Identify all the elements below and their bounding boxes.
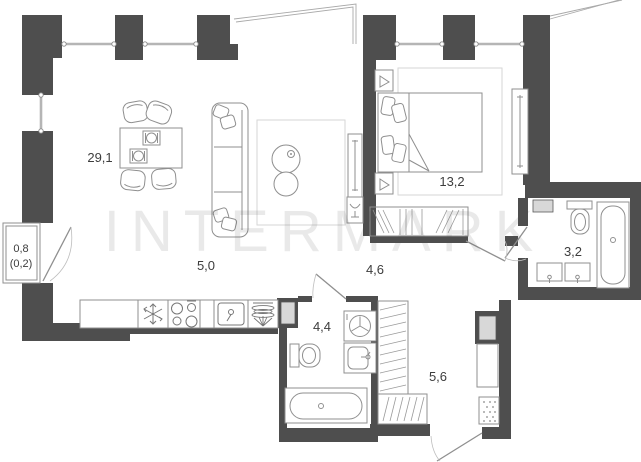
coffee-tables	[272, 145, 300, 196]
room-label-living: 29,1	[87, 150, 112, 165]
bathroom-sink	[344, 343, 376, 373]
shelf-cabinet	[348, 134, 362, 197]
bathtub	[597, 202, 629, 288]
balcony-door	[43, 227, 71, 281]
bathroom-2-door	[313, 274, 346, 299]
nightstand	[375, 70, 393, 91]
room-label-corridor: 5,6	[429, 369, 447, 384]
room-label-hallway: 4,6	[366, 262, 384, 277]
doormat	[479, 397, 499, 424]
nightstand	[375, 173, 393, 194]
toilet	[290, 344, 320, 367]
wardrobe	[512, 89, 528, 174]
bathroom-sink	[565, 263, 590, 283]
room-label-bedroom: 13,2	[439, 174, 464, 189]
toilet	[567, 201, 592, 234]
dining-chair	[122, 100, 149, 124]
entrance-door	[431, 433, 482, 461]
floor-plan: 29,1 5,0 13,2 4,6 3,2 4,4 5,6 0,8 (0,2) …	[0, 0, 641, 462]
exterior-outline	[234, 0, 622, 44]
watermark: INTERMARK	[104, 199, 545, 264]
dining-table	[120, 128, 182, 168]
bathroom-sink	[537, 263, 562, 283]
room-label-balcony-reduced: (0,2)	[10, 258, 33, 270]
hall-wardrobe	[378, 301, 427, 424]
ventilation-shaft	[479, 316, 496, 340]
room-label-balcony: 0,8	[13, 243, 28, 255]
room-label-bathroom: 3,2	[564, 244, 582, 259]
hall-cabinet	[477, 344, 498, 387]
dining-chair	[144, 99, 173, 126]
ventilation-shaft	[281, 302, 295, 324]
room-label-bathroom2: 4,4	[313, 319, 331, 334]
bed	[378, 93, 482, 172]
washing-machine	[344, 311, 376, 341]
floor-plan-svg: 29,1 5,0 13,2 4,6 3,2 4,4 5,6 0,8 (0,2) …	[0, 0, 641, 462]
dining-chair	[120, 169, 146, 191]
dining-chair	[151, 168, 177, 190]
kitchen-counter	[80, 300, 278, 328]
bathtub	[285, 388, 367, 423]
